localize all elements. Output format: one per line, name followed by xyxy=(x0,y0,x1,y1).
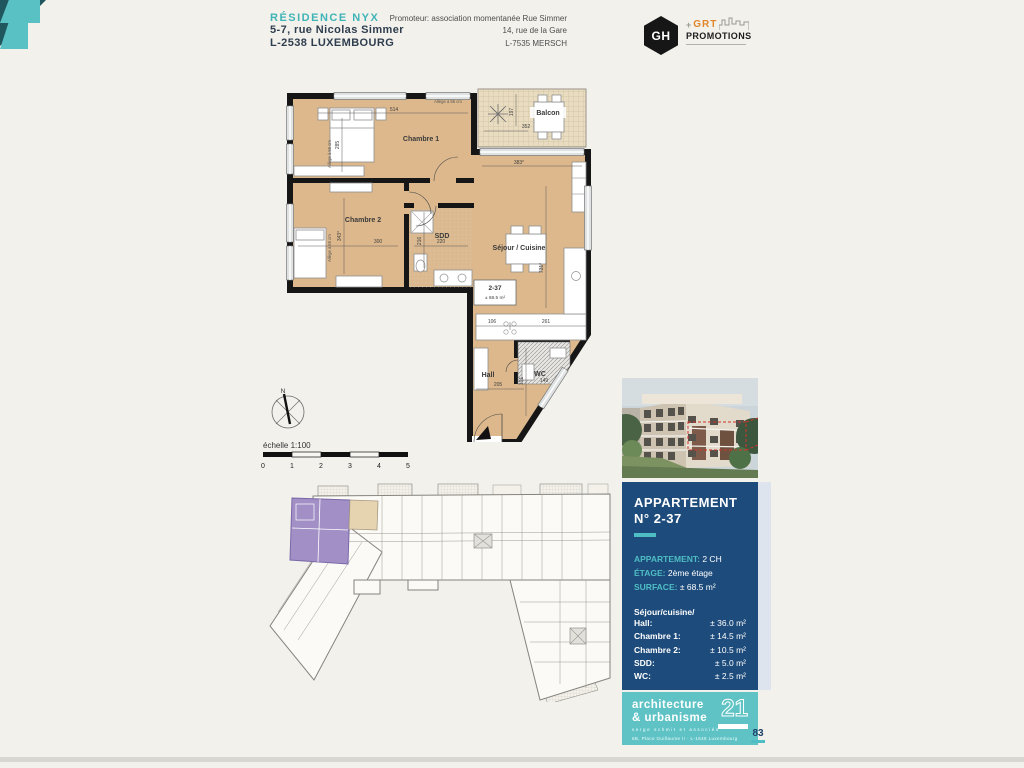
grt-logo-text: GRT xyxy=(693,20,717,30)
page-number: 83 xyxy=(751,728,765,743)
dim-149: 149 xyxy=(540,378,549,384)
sdd-area xyxy=(409,208,472,288)
dim-191: 191 xyxy=(519,377,525,386)
residence-title: RÉSIDENCE NYX xyxy=(270,12,379,24)
dim-220: 220 xyxy=(437,239,446,245)
dim-383: 383° xyxy=(514,160,524,166)
teal-dash xyxy=(634,533,656,537)
allege-label-left1: Allège à 55 cm xyxy=(327,140,332,168)
dim-352: 352 xyxy=(522,124,531,130)
promoter-line1: Promoteur: association momentanée Rue Si… xyxy=(385,13,567,25)
architecture-urbanisme-logo: architecture & urbanisme 21 serge schmit… xyxy=(622,692,758,745)
panel-edge-strip xyxy=(758,482,771,690)
room-row-chambre1: Chambre 1:± 14.5 m² xyxy=(634,630,746,643)
scale-tick-1: 1 xyxy=(290,463,294,470)
dim-216: 216 xyxy=(417,237,423,246)
dim-343: 343° xyxy=(337,231,343,241)
unit-area: ± 68.5 m² xyxy=(485,295,506,301)
rooms-header: Séjour/cuisine/ xyxy=(634,607,746,617)
info-title-line1: APPARTEMENT xyxy=(634,495,746,511)
building-photo xyxy=(622,378,758,478)
grt-plus-icon: + xyxy=(686,21,691,30)
grt-tagline-line xyxy=(686,44,746,45)
room-label-sejour: Séjour / Cuisine xyxy=(493,245,546,252)
balcony-area: Balcon 352 197 xyxy=(478,89,586,147)
compass-north-label: N xyxy=(281,388,286,395)
room-label-wc: WC xyxy=(534,371,546,378)
dim-300: 300 xyxy=(374,239,383,245)
allege-label-top: Allège à 55 cm xyxy=(434,99,462,104)
residence-address-line1: 5-7, rue Nicolas Simmer xyxy=(270,24,404,36)
dim-205: 205 xyxy=(494,382,503,388)
scale-tick-2: 2 xyxy=(319,463,323,470)
scale-tick-4: 4 xyxy=(377,463,381,470)
gh-logo: GH xyxy=(644,16,678,55)
dim-731: 731° xyxy=(539,263,545,273)
plant-icon xyxy=(488,104,508,124)
page-number-underline xyxy=(751,740,765,743)
page-number-value: 83 xyxy=(751,728,765,739)
room-label-hall: Hall xyxy=(482,372,495,379)
gh-logo-letters: GH xyxy=(652,29,671,43)
page-bottom-strip xyxy=(0,757,1024,762)
unit-number: 2-37 xyxy=(488,285,501,292)
allege-label-left2: Allège à 55 cm xyxy=(327,234,332,262)
spec-appartement: APPARTEMENT: 2 CH xyxy=(634,552,746,566)
apartment-floorplan: Balcon 352 197 xyxy=(278,86,598,442)
spec-etage: ÉTAGE: 2ème étage xyxy=(634,566,746,580)
room-label-chambre1: Chambre 1 xyxy=(403,136,439,143)
grt-promotions-text: PROMOTIONS xyxy=(686,31,758,41)
agency-number: 21 xyxy=(721,697,748,721)
agency-underline-bar xyxy=(718,724,748,729)
agency-address: 6B, Place Guillaume II · L-1648 Luxembou… xyxy=(632,736,748,741)
scale-tick-0: 0 xyxy=(261,463,265,470)
dim-261: 261 xyxy=(542,319,551,325)
residence-address-line2: L-2538 LUXEMBOURG xyxy=(270,37,394,49)
unit-label-box: 2-37 ± 68.5 m² xyxy=(474,280,516,305)
dim-197: 197 xyxy=(509,108,515,117)
scale-bar: échelle 1:100 0 1 2 3 4 5 xyxy=(260,438,416,474)
room-row-hall: Hall:± 36.0 m² xyxy=(634,617,746,630)
room-label-chambre2: Chambre 2 xyxy=(345,217,381,224)
north-compass: N xyxy=(262,386,314,438)
building-overview-plan xyxy=(258,480,620,702)
skyline-icon xyxy=(719,16,749,30)
promoter-line2: 14, rue de la Gare xyxy=(385,25,567,37)
grt-promotions-logo: + GRT PROMOTIONS xyxy=(686,14,758,45)
scale-tick-3: 3 xyxy=(348,463,352,470)
promoter-block: Promoteur: association momentanée Rue Si… xyxy=(385,13,567,50)
room-row-wc: WC:± 2.5 m² xyxy=(634,670,746,683)
dim-285: 285 xyxy=(335,141,341,150)
room-row-sdd: SDD:± 5.0 m² xyxy=(634,657,746,670)
scale-label: échelle 1:100 xyxy=(263,441,311,450)
promoter-line3: L-7535 MERSCH xyxy=(385,38,567,50)
apartment-info-panel: APPARTEMENT N° 2-37 APPARTEMENT: 2 CH ÉT… xyxy=(622,482,758,690)
dim-106: 106 xyxy=(488,319,497,325)
spec-surface: SURFACE: ± 68.5 m² xyxy=(634,580,746,594)
room-row-chambre2: Chambre 2:± 10.5 m² xyxy=(634,644,746,657)
scale-tick-5: 5 xyxy=(406,463,410,470)
info-title-line2: N° 2-37 xyxy=(634,511,746,527)
dim-514: 514 xyxy=(390,107,399,113)
brochure-page: RÉSIDENCE NYX 5-7, rue Nicolas Simmer L-… xyxy=(0,0,1024,768)
room-label-balcon: Balcon xyxy=(536,110,559,117)
